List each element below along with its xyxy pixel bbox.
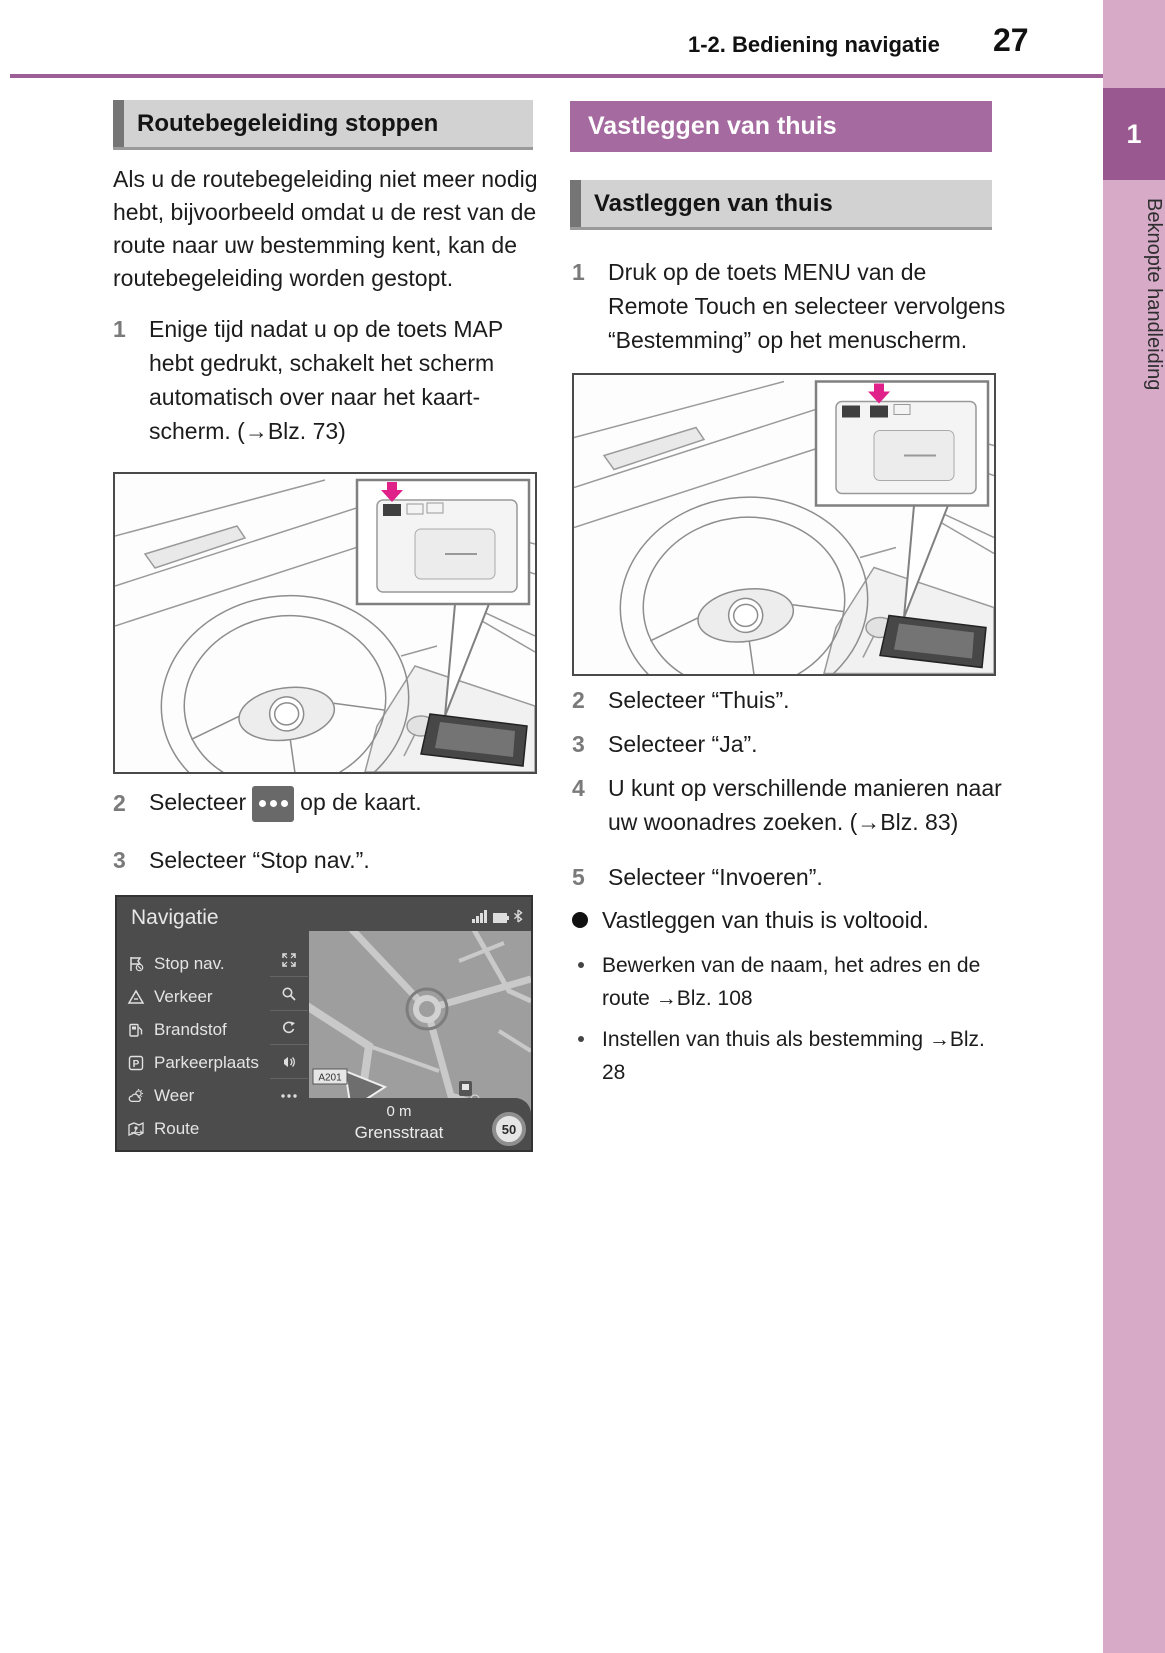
step-number: 2 <box>572 683 608 717</box>
speed-limit-sign: 50 <box>492 1112 526 1146</box>
chapter-number-badge: 1 <box>1103 88 1165 180</box>
section-accent-bar <box>113 100 124 147</box>
step-2-left: 2 Selecteerop de kaart. <box>113 785 545 822</box>
dashboard-sketch <box>115 474 535 772</box>
nav-item-weer: Weer <box>127 1079 267 1112</box>
rotate-icon <box>270 1011 308 1045</box>
nav-screen-title: Navigatie <box>131 906 219 930</box>
step-text: Selecteerop de kaart. <box>149 785 545 822</box>
nav-item-brandstof: Brandstof <box>127 1013 267 1046</box>
chapter-title-vertical: Beknopte handleiding <box>1103 198 1165 390</box>
note-item: Bewerken van de naam, het adres en de ro… <box>572 949 1002 1015</box>
step-number: 1 <box>572 255 608 357</box>
step-number: 5 <box>572 860 608 894</box>
nav-item-route: Route <box>127 1112 267 1145</box>
chapter-number: 1 <box>1126 119 1141 150</box>
manual-page: 1-2. Bediening navigatie 27 1 Beknopte h… <box>0 0 1165 1653</box>
section-accent-bar <box>570 180 581 227</box>
step-text: Enige tijd nadat u op de toets MAP hebt … <box>149 312 545 448</box>
step-1-right: 1 Druk op de toets MENU van de Remote To… <box>572 255 1008 357</box>
nav-toolbar <box>270 943 308 1113</box>
svg-text:P: P <box>133 1059 140 1070</box>
traffic-icon <box>127 988 145 1006</box>
step-number: 4 <box>572 771 608 839</box>
step-number: 2 <box>113 786 149 820</box>
battery-icon <box>493 913 507 923</box>
nav-bottom-bar: 0 m Grensstraat <box>267 1098 531 1150</box>
nav-item-stop-nav: Stop nav. <box>127 947 267 980</box>
note-text: Bewerken van de naam, het adres en de ro… <box>602 949 1002 1015</box>
step-5-right: 5 Selecteer “Invoeren”. <box>572 860 1008 894</box>
step-1-left: 1 Enige tijd nadat u op de toets MAP heb… <box>113 312 545 448</box>
step-4-right: 4 U kunt op verschillende manieren naar … <box>572 771 1008 839</box>
road-label: A201 <box>318 1073 342 1084</box>
step-text: U kunt op verschillende manieren naar uw… <box>608 771 1008 839</box>
weather-icon <box>127 1087 145 1105</box>
search-icon <box>270 977 308 1011</box>
nav-item-verkeer: Verkeer <box>127 980 267 1013</box>
header-rule <box>10 74 1103 78</box>
road-label-badge: A201 <box>313 1069 347 1084</box>
page-number: 27 <box>993 22 1029 59</box>
step-text: Selecteer “Ja”. <box>608 727 1008 761</box>
note-text: Instellen van thuis als bestemming →Blz.… <box>602 1023 1002 1089</box>
step-number: 3 <box>572 727 608 761</box>
header-section-title: 1-2. Bediening navigatie <box>688 32 940 58</box>
step-3-right: 3 Selecteer “Ja”. <box>572 727 1008 761</box>
car-interior-illustration-map <box>113 472 537 774</box>
nav-item-parkeerplaats: P Parkeerplaats <box>127 1046 267 1079</box>
signal-icon <box>472 910 487 923</box>
remote-touch-callout <box>816 382 988 506</box>
map-options-icon <box>252 786 294 822</box>
step-text: Selecteer “Stop nav.”. <box>149 843 545 877</box>
subsection-title: Vastleggen van thuis <box>581 190 833 218</box>
result-text: Vastleggen van thuis is voltooid. <box>602 903 929 937</box>
note-item: Instellen van thuis als bestemming →Blz.… <box>572 1023 1002 1089</box>
step-text: Selecteer “Invoeren”. <box>608 860 1008 894</box>
result-bullet: Vastleggen van thuis is voltooid. <box>572 903 1008 937</box>
step-3-left: 3 Selecteer “Stop nav.”. <box>113 843 545 877</box>
stop-nav-icon <box>127 955 145 973</box>
step-number: 1 <box>113 312 149 448</box>
subsection-header-right: Vastleggen van thuis <box>570 180 992 230</box>
step-number: 3 <box>113 843 149 877</box>
voice-icon <box>270 1045 308 1079</box>
intro-paragraph: Als u de routebegeleiding niet meer nodi… <box>113 163 541 295</box>
fuel-icon <box>127 1021 145 1039</box>
step-2-right: 2 Selecteer “Thuis”. <box>572 683 1008 717</box>
step-text: Druk op de toets MENU van de Remote Touc… <box>608 255 1008 357</box>
section-header-left: Routebegeleiding stoppen <box>113 100 533 150</box>
navigation-screen-illustration: Navigatie Stop nav. Verkeer Brandstof P <box>115 895 533 1152</box>
section-header-right: Vastleggen van thuis <box>570 101 992 152</box>
bullet-icon <box>572 912 588 928</box>
remote-touch-callout <box>357 480 529 604</box>
car-interior-illustration-menu <box>572 373 996 676</box>
dashboard-sketch <box>574 375 994 674</box>
nav-status-icons <box>472 909 523 923</box>
step-text: Selecteer “Thuis”. <box>608 683 1008 717</box>
bullet-icon <box>578 1036 584 1042</box>
distance-readout: 0 m <box>267 1103 531 1120</box>
section-title: Routebegeleiding stoppen <box>124 110 438 138</box>
nav-menu: Stop nav. Verkeer Brandstof P Parkeerpla… <box>127 947 267 1145</box>
bullet-icon <box>578 962 584 968</box>
chapter-sidebar: 1 Beknopte handleiding <box>1103 0 1165 1653</box>
bluetooth-icon <box>513 909 523 923</box>
parking-icon: P <box>127 1054 145 1072</box>
section-title: Vastleggen van thuis <box>570 112 837 141</box>
expand-icon <box>270 943 308 977</box>
arrow-right-icon: → <box>127 1119 147 1142</box>
